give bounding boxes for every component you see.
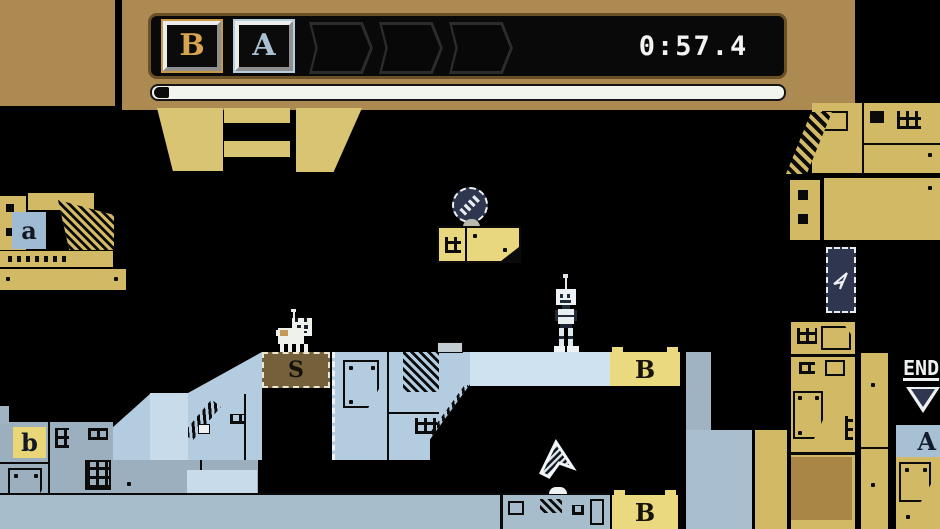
creature-antenna-tip — [291, 309, 296, 312]
screw — [923, 468, 927, 472]
seam — [864, 143, 940, 145]
creature-leg — [280, 344, 284, 352]
tile-tab — [614, 490, 625, 495]
letter-tile-b-platform-label: B — [635, 355, 655, 384]
hanging-bar-top — [224, 108, 290, 123]
prohibit-slash — [459, 194, 480, 215]
end-sign: END — [903, 356, 940, 383]
hud-slot-1-letter: B — [179, 31, 204, 61]
window-hole — [798, 214, 808, 224]
right-plain-block — [824, 178, 940, 240]
vent-slots — [8, 256, 70, 262]
screw — [871, 483, 875, 487]
letter-tile-a-right[interactable]: A — [896, 425, 940, 458]
screw — [928, 153, 932, 157]
hanging-trapezoid-right — [296, 108, 362, 172]
screw — [34, 474, 38, 478]
left-cluster-base-bar — [0, 269, 126, 290]
blue-column — [686, 430, 752, 529]
hud-slot-5-empty — [449, 22, 513, 74]
companion-creature[interactable] — [276, 310, 316, 352]
right-window-block — [790, 180, 820, 240]
hud-slot-2-letter: A — [252, 31, 275, 61]
hud-slot-5-inner — [452, 25, 510, 71]
creature-ear — [304, 318, 307, 322]
panel — [198, 424, 210, 434]
creature-ear — [295, 318, 298, 322]
light-ledge — [187, 470, 257, 493]
raised-chip — [437, 342, 463, 353]
brown-inset — [791, 457, 852, 520]
panel — [821, 326, 851, 350]
left-cluster-vent-bar — [0, 251, 113, 267]
vent-column — [845, 416, 853, 440]
end-sign-label: END — [903, 356, 939, 380]
hud-slot-4-inner — [382, 25, 440, 71]
ramp-step-high — [188, 352, 262, 460]
seam — [862, 103, 864, 173]
seam — [465, 228, 467, 261]
panel — [825, 360, 845, 376]
robot-knee — [559, 336, 564, 339]
letter-tile-b-platform[interactable]: B — [610, 352, 680, 386]
hatch-stripes — [183, 399, 220, 440]
prohibit-sign[interactable] — [452, 187, 488, 223]
screw — [14, 474, 18, 478]
maze-panel — [85, 460, 111, 490]
seam — [389, 412, 439, 414]
game-viewport[interactable]: B A 0:57.4 a — [0, 0, 940, 529]
right-lower-mass — [791, 322, 855, 529]
letter-tile-b-bottom[interactable]: B — [612, 495, 678, 529]
seam — [791, 354, 855, 357]
hatch-stripes — [403, 352, 439, 392]
right-pillar — [861, 353, 888, 529]
creature-patch — [280, 330, 288, 336]
seam — [387, 352, 389, 460]
screw — [473, 234, 477, 238]
screw — [114, 277, 118, 281]
dot-grid — [445, 237, 461, 253]
letter-tile-a-right-label: A — [917, 427, 936, 456]
robot-arm — [555, 310, 558, 321]
portal-slot[interactable] — [826, 247, 856, 313]
hud-slot-1: B — [163, 21, 221, 71]
hud-bar: B A 0:57.4 — [148, 13, 787, 79]
robot-eye — [560, 294, 563, 298]
seam — [0, 462, 48, 464]
screw — [905, 468, 909, 472]
blocked-sign[interactable]: S — [262, 352, 330, 388]
robot-eye — [567, 294, 570, 298]
hanging-box — [437, 226, 521, 263]
letter-tile-b[interactable]: b — [13, 427, 46, 458]
letter-tile-b-bottom-label: B — [635, 498, 655, 527]
robot-torso — [558, 309, 574, 324]
screw — [349, 400, 353, 404]
end-arrow-fill — [911, 389, 935, 407]
shield-panel — [899, 462, 931, 502]
robot-mouth — [560, 300, 571, 303]
seam — [861, 447, 888, 449]
creature-eye — [304, 325, 308, 329]
hud-slot-2: A — [235, 21, 293, 71]
slate-pillar — [686, 352, 711, 432]
left-edge-chip — [0, 406, 9, 424]
paper-plane-icon — [534, 438, 580, 480]
robot-foot — [554, 346, 565, 352]
screw — [798, 396, 802, 400]
letter-tile-a-label: a — [21, 216, 37, 245]
hud-progress-track — [150, 84, 786, 101]
creature-leg — [288, 344, 292, 352]
letter-tile-b-label: b — [21, 428, 38, 457]
player-robot[interactable] — [548, 276, 584, 352]
panel — [590, 499, 604, 525]
blocked-sign-glyph: S — [288, 357, 304, 383]
tan-column — [755, 430, 787, 529]
dot-grid — [572, 505, 584, 515]
seam — [791, 452, 855, 455]
robot-chest-line — [558, 315, 574, 317]
hud-slot-4-empty — [379, 22, 443, 74]
launcher-dome — [549, 487, 567, 494]
window-hole — [6, 204, 14, 212]
shield-panel — [793, 391, 823, 439]
hanging-trapezoid-left — [157, 108, 223, 171]
robot-antenna-tip — [563, 274, 568, 278]
hanging-bar-bottom — [224, 141, 290, 157]
left-cluster-ramp — [58, 200, 114, 250]
creature-tail — [276, 330, 280, 336]
central-platform — [332, 352, 470, 460]
right-edge-base — [896, 457, 940, 529]
dot-grid — [88, 428, 108, 440]
robot-foot — [567, 346, 579, 352]
screw — [798, 431, 802, 435]
creature-leg — [296, 344, 300, 352]
tile-tab — [665, 490, 676, 495]
screw — [371, 366, 375, 370]
robot-head — [556, 289, 576, 305]
top-banner-left — [0, 0, 115, 106]
screw — [871, 383, 875, 387]
screw — [928, 186, 932, 190]
hud-slot-3-inner — [312, 25, 370, 71]
creature-leg — [304, 344, 308, 352]
screw — [6, 277, 10, 281]
screw — [349, 366, 353, 370]
paper-plane-icon — [831, 269, 851, 291]
screw — [906, 515, 910, 519]
hud-progress-fill — [154, 87, 169, 98]
central-slab — [470, 352, 610, 386]
hud-timer: 0:57.4 — [606, 31, 781, 62]
dot-grid — [897, 111, 921, 129]
seam — [244, 394, 246, 460]
letter-tile-a[interactable]: a — [12, 212, 46, 249]
vent — [55, 428, 69, 448]
ramp-step-low — [113, 393, 151, 460]
vent — [799, 362, 815, 374]
window-hole — [870, 111, 884, 123]
tile-tab — [667, 347, 678, 352]
hud-slot-3-empty — [309, 22, 373, 74]
paper-plane-pickup[interactable] — [534, 438, 580, 480]
window-hole — [798, 190, 808, 200]
hatch-stripes — [540, 499, 562, 513]
tile-tab — [612, 347, 623, 352]
bottom-platform — [0, 493, 610, 529]
robot-knee — [568, 336, 573, 339]
screw — [503, 248, 507, 252]
robot-arm — [574, 310, 577, 321]
screw — [127, 482, 131, 486]
screw — [815, 396, 819, 400]
seam — [500, 495, 503, 529]
dot-grid — [797, 328, 817, 344]
shield-panel — [343, 360, 379, 408]
creature-body — [278, 328, 304, 344]
panel — [508, 501, 524, 515]
ramp-block — [150, 393, 188, 460]
